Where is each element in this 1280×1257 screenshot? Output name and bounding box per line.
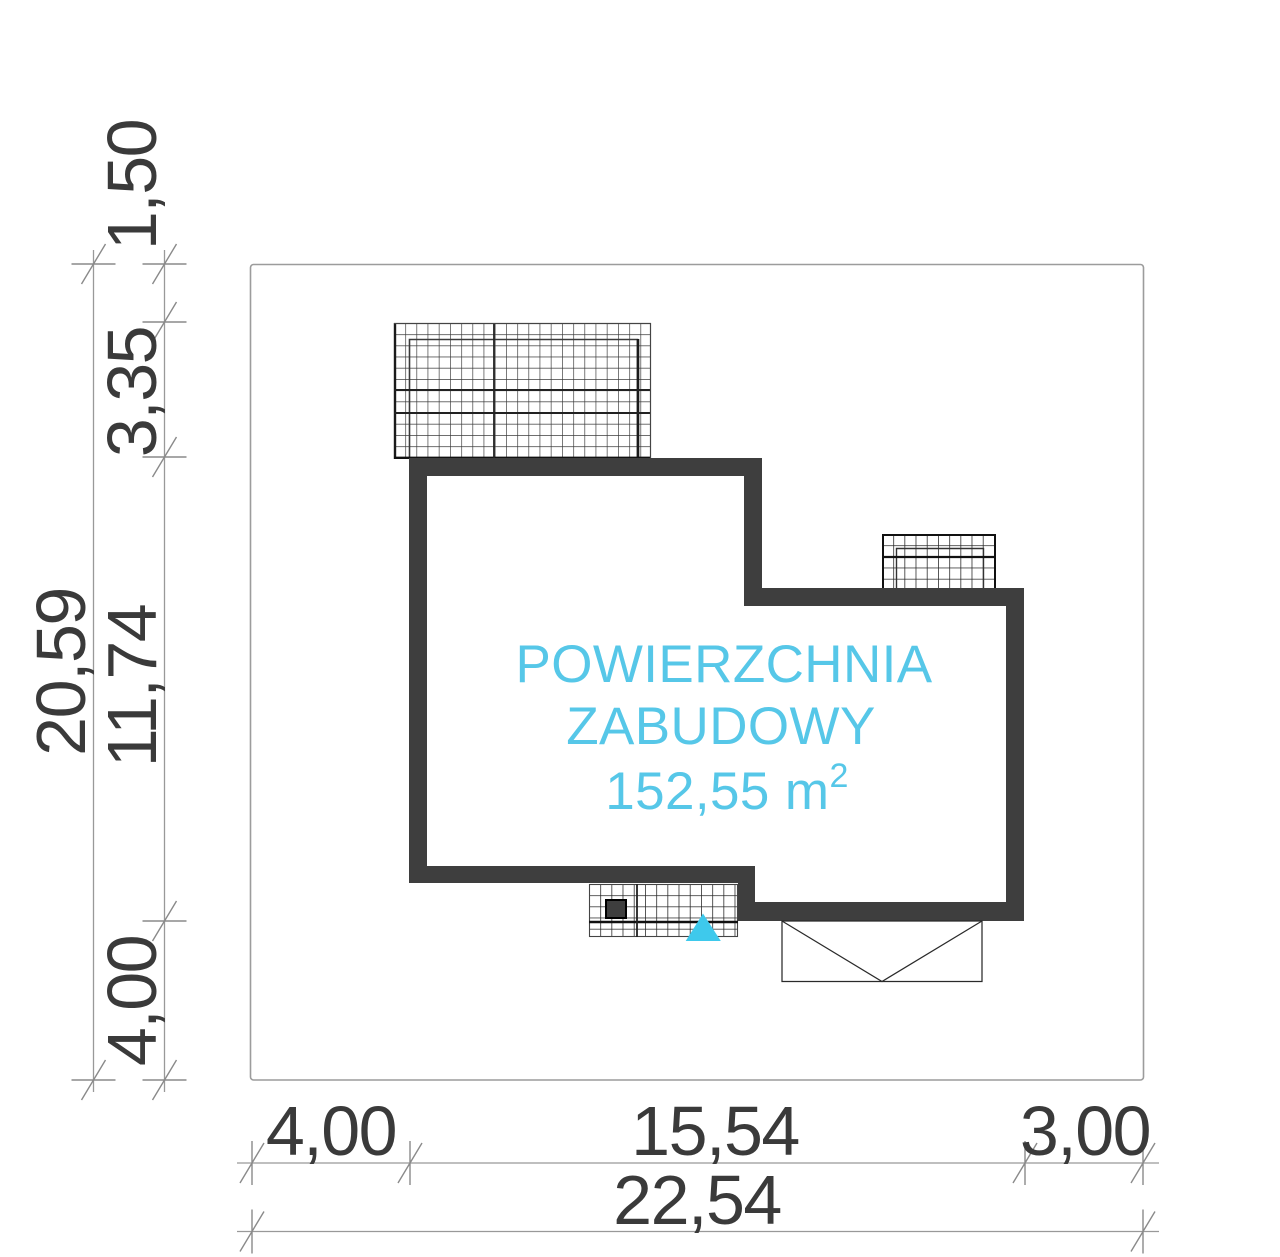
svg-text:3,35: 3,35 [93, 327, 171, 457]
svg-text:4,00: 4,00 [266, 1092, 396, 1170]
svg-text:152,55 m2: 152,55 m2 [605, 757, 849, 821]
svg-text:1,50: 1,50 [93, 120, 171, 250]
svg-text:11,74: 11,74 [93, 605, 171, 767]
svg-text:22,54: 22,54 [613, 1161, 781, 1239]
svg-text:ZABUDOWY: ZABUDOWY [566, 697, 875, 756]
svg-text:4,00: 4,00 [93, 936, 171, 1066]
svg-text:15,54: 15,54 [631, 1092, 799, 1170]
svg-text:20,59: 20,59 [22, 588, 100, 756]
svg-text:POWIERZCHNIA: POWIERZCHNIA [515, 635, 932, 694]
svg-text:3,00: 3,00 [1020, 1092, 1150, 1170]
